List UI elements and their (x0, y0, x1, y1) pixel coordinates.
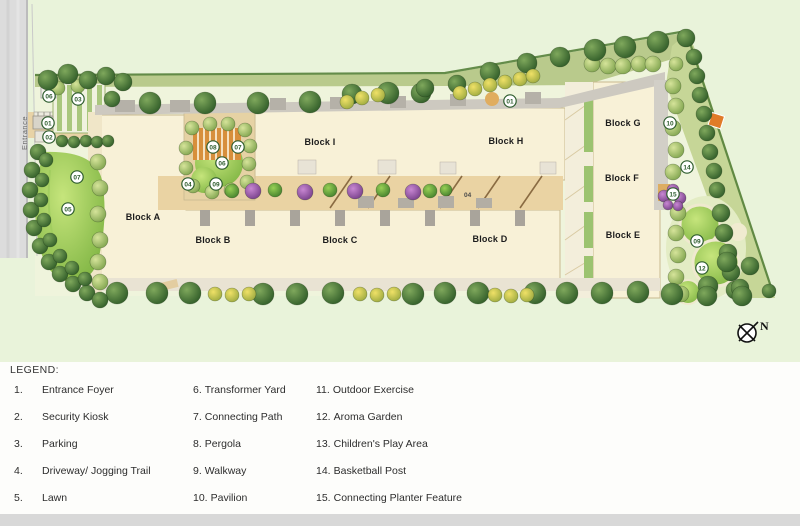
legend-item-label: Basketball Post (334, 465, 406, 477)
legend-item: 2.Security Kiosk (14, 411, 109, 423)
tree-icon (58, 64, 78, 84)
yellow-bush-icon (370, 288, 384, 302)
tree-icon (286, 283, 308, 305)
yellow-bush-icon (353, 287, 367, 301)
green-shrub-icon (423, 184, 437, 198)
hedge-icon (91, 136, 103, 148)
tree-icon (90, 206, 106, 222)
legend-item: 3.Parking (14, 438, 78, 450)
tree-icon (434, 282, 456, 304)
svg-text:01: 01 (506, 98, 514, 105)
block-label: Block B (196, 235, 231, 245)
map-marker-02: 02 (43, 131, 55, 143)
map-marker-07: 07 (71, 171, 83, 183)
svg-text:05: 05 (64, 206, 72, 213)
map-marker-09: 09 (210, 178, 222, 190)
tree-icon (556, 282, 578, 304)
tree-icon (92, 274, 108, 290)
svg-text:10: 10 (666, 120, 674, 127)
yellow-bush-icon (504, 289, 518, 303)
block-label: Block G (605, 118, 640, 128)
tree-icon (247, 92, 269, 114)
legend-item-label: Lawn (42, 492, 67, 504)
tree-icon (686, 49, 702, 65)
legend-item-number: 15. (316, 492, 331, 504)
tree-icon (689, 68, 705, 84)
map-marker-08: 08 (207, 141, 219, 153)
legend-item-label: Walkway (205, 465, 247, 477)
legend-item-number: 6. (193, 384, 202, 396)
legend-item: 4.Driveway/ Jogging Trail (14, 465, 151, 477)
legend-item: 13.Children's Play Area (316, 438, 428, 450)
legend-item-label: Outdoor Exercise (333, 384, 414, 396)
tree-icon (179, 141, 193, 155)
legend-item: 11.Outdoor Exercise (316, 384, 414, 396)
svg-text:08: 08 (209, 144, 217, 151)
tree-icon (627, 281, 649, 303)
tree-icon (92, 292, 108, 308)
legend-item-number: 4. (14, 465, 42, 477)
svg-text:01: 01 (44, 120, 52, 127)
legend-item-label: Parking (42, 438, 78, 450)
legend-item-label: Connecting Planter Feature (334, 492, 462, 504)
tree-icon (615, 58, 631, 74)
legend-item-number: 8. (193, 438, 202, 450)
connecting-walkway (565, 82, 593, 298)
tree-icon (34, 193, 48, 207)
hedge-icon (68, 136, 80, 148)
legend-title: LEGEND: (10, 364, 59, 376)
legend-item-label: Pergola (205, 438, 241, 450)
hedge-icon (102, 135, 114, 147)
map-marker-04: 04 (182, 178, 194, 190)
flowering-shrub-icon (347, 183, 363, 199)
yellow-bush-icon (453, 86, 467, 100)
block-label: Block C (323, 235, 358, 245)
tree-icon (322, 282, 344, 304)
green-shrub-icon (440, 184, 452, 196)
tree-icon (692, 87, 708, 103)
entrance-label: Entrance (20, 116, 29, 150)
map-marker-05: 05 (62, 203, 74, 215)
legend-item: 12.Aroma Garden (316, 411, 402, 423)
legend-item-label: Pavilion (211, 492, 248, 504)
tree-icon (92, 180, 108, 196)
legend-item-label: Entrance Foyer (42, 384, 114, 396)
tree-icon (106, 282, 128, 304)
svg-text:12: 12 (698, 265, 706, 272)
yellow-bush-icon (371, 88, 385, 102)
green-shrub-icon (268, 183, 282, 197)
map-marker-06: 06 (43, 90, 55, 102)
svg-text:15: 15 (669, 191, 677, 198)
tree-icon (717, 252, 737, 272)
tree-icon (631, 56, 647, 72)
tree-icon (677, 29, 695, 47)
legend-item-label: Children's Play Area (334, 438, 428, 450)
tree-icon (709, 182, 725, 198)
legend: LEGEND: 1.Entrance Foyer2.Security Kiosk… (0, 362, 800, 514)
tree-icon (92, 232, 108, 248)
legend-item-number: 1. (14, 384, 42, 396)
tree-icon (416, 79, 434, 97)
tree-icon (179, 282, 201, 304)
tree-icon (194, 92, 216, 114)
tree-icon (600, 58, 616, 74)
block-label: Block I (305, 137, 336, 147)
hedge-icon (80, 135, 92, 147)
block-label: Block F (605, 173, 639, 183)
tree-icon (90, 154, 106, 170)
svg-text:03: 03 (74, 96, 82, 103)
tree-icon (39, 153, 53, 167)
yellow-bush-icon (242, 287, 256, 301)
block-label: Block H (489, 136, 524, 146)
map-marker-12: 12 (696, 262, 708, 274)
map-marker-15: 15 (667, 188, 679, 200)
tree-icon (243, 139, 257, 153)
legend-item-label: Transformer Yard (205, 384, 286, 396)
map-marker-06: 06 (216, 157, 228, 169)
yellow-bush-icon (468, 82, 482, 96)
tree-icon (661, 283, 683, 305)
legend-item-number: 7. (193, 411, 202, 423)
tree-icon (550, 47, 570, 67)
flowering-shrub-icon (245, 183, 261, 199)
tree-icon (185, 121, 199, 135)
block-label: Block D (473, 234, 508, 244)
legend-item-label: Driveway/ Jogging Trail (42, 465, 151, 477)
tree-icon (139, 92, 161, 114)
block-label: Block A (126, 212, 161, 222)
tree-icon (712, 204, 730, 222)
tree-icon (37, 213, 51, 227)
tree-icon (299, 91, 321, 113)
yellow-bush-icon (340, 95, 354, 109)
svg-text:09: 09 (212, 181, 220, 188)
tree-icon (35, 173, 49, 187)
legend-item: 9.Walkway (193, 465, 246, 477)
map-marker-01: 01 (42, 117, 54, 129)
tree-icon (647, 31, 669, 53)
tree-icon (221, 117, 235, 131)
tree-icon (38, 70, 58, 90)
legend-item-number: 14. (316, 465, 331, 477)
tree-icon (702, 144, 718, 160)
tree-icon (741, 257, 759, 275)
legend-item-number: 2. (14, 411, 42, 423)
hedge-icon (56, 135, 68, 147)
svg-text:07: 07 (234, 144, 242, 151)
flowering-shrub-icon (405, 184, 421, 200)
legend-item-number: 11. (316, 384, 330, 396)
tree-icon (669, 57, 683, 71)
compass-north-label: N (760, 319, 769, 333)
map-marker-01: 01 (504, 95, 516, 107)
legend-item: 8.Pergola (193, 438, 241, 450)
yellow-bush-icon (520, 288, 534, 302)
tree-icon (706, 163, 722, 179)
tree-icon (697, 286, 717, 306)
legend-item-number: 13. (316, 438, 331, 450)
legend-item: 5.Lawn (14, 492, 67, 504)
tree-icon (668, 225, 684, 241)
tree-icon (665, 164, 681, 180)
tree-icon (665, 78, 681, 94)
entrance-foyer-arch-icon (485, 92, 499, 106)
map-marker-10: 10 (664, 117, 676, 129)
legend-item-label: Aroma Garden (334, 411, 403, 423)
site-plan-screenshot: Entrance (0, 0, 800, 526)
legend-item: 1.Entrance Foyer (14, 384, 114, 396)
bottom-border-strip (0, 514, 800, 526)
tree-icon (668, 269, 684, 285)
tree-icon (699, 125, 715, 141)
block-gfe-building (593, 82, 660, 298)
legend-item-label: Security Kiosk (42, 411, 109, 423)
tree-icon (668, 98, 684, 114)
svg-text:14: 14 (683, 164, 691, 171)
legend-item-number: 5. (14, 492, 42, 504)
yellow-bush-icon (513, 72, 527, 86)
legend-item-number: 9. (193, 465, 202, 477)
svg-text:07: 07 (73, 174, 81, 181)
tree-icon (238, 123, 252, 137)
svg-text:06: 06 (45, 93, 53, 100)
block-label: Block E (606, 230, 640, 240)
tree-icon (79, 71, 97, 89)
tree-icon (43, 233, 57, 247)
legend-item: 14.Basketball Post (316, 465, 406, 477)
svg-text:06: 06 (218, 160, 226, 167)
tree-icon (402, 283, 424, 305)
tree-icon (65, 261, 79, 275)
master-site-plan: Entrance (0, 0, 800, 362)
tree-icon (668, 142, 684, 158)
tree-icon (614, 36, 636, 58)
tree-icon (53, 249, 67, 263)
yellow-bush-icon (526, 69, 540, 83)
map-marker-07: 07 (232, 141, 244, 153)
flowering-shrub-icon (673, 201, 683, 211)
legend-item-number: 10. (193, 492, 208, 504)
green-shrub-icon (323, 183, 337, 197)
tree-icon (242, 157, 256, 171)
tree-icon (670, 247, 686, 263)
flowering-shrub-icon (297, 184, 313, 200)
yellow-bush-icon (483, 78, 497, 92)
tree-icon (179, 161, 193, 175)
green-shrub-icon (225, 184, 239, 198)
flowering-shrub-icon (663, 200, 673, 210)
tree-icon (762, 284, 776, 298)
map-marker-09: 09 (691, 235, 703, 247)
tree-icon (584, 39, 606, 61)
green-shrub-icon (376, 183, 390, 197)
tree-icon (467, 282, 489, 304)
legend-item-number: 12. (316, 411, 331, 423)
tree-icon (696, 106, 712, 122)
legend-item-number: 3. (14, 438, 42, 450)
yellow-bush-icon (498, 75, 512, 89)
tree-icon (732, 286, 752, 306)
svg-text:04: 04 (184, 181, 192, 188)
tree-icon (90, 254, 106, 270)
tree-icon (78, 272, 92, 286)
legend-item-label: Connecting Path (205, 411, 283, 423)
legend-item: 6.Transformer Yard (193, 384, 286, 396)
yellow-bush-icon (387, 287, 401, 301)
legend-item: 7.Connecting Path (193, 411, 282, 423)
tree-icon (645, 56, 661, 72)
yellow-bush-icon (355, 91, 369, 105)
map-marker-03: 03 (72, 93, 84, 105)
tree-icon (114, 73, 132, 91)
svg-text:09: 09 (693, 238, 701, 245)
tree-icon (591, 282, 613, 304)
legend-item: 10.Pavilion (193, 492, 247, 504)
tree-icon (146, 282, 168, 304)
yellow-bush-icon (488, 288, 502, 302)
tree-icon (97, 67, 115, 85)
yellow-bush-icon (225, 288, 239, 302)
tree-icon (203, 117, 217, 131)
legend-item: 15.Connecting Planter Feature (316, 492, 462, 504)
driveway-code-label: 04 (464, 192, 472, 199)
yellow-bush-icon (208, 287, 222, 301)
map-marker-14: 14 (681, 161, 693, 173)
tree-icon (715, 224, 733, 242)
svg-text:02: 02 (45, 134, 53, 141)
tree-icon (104, 91, 120, 107)
